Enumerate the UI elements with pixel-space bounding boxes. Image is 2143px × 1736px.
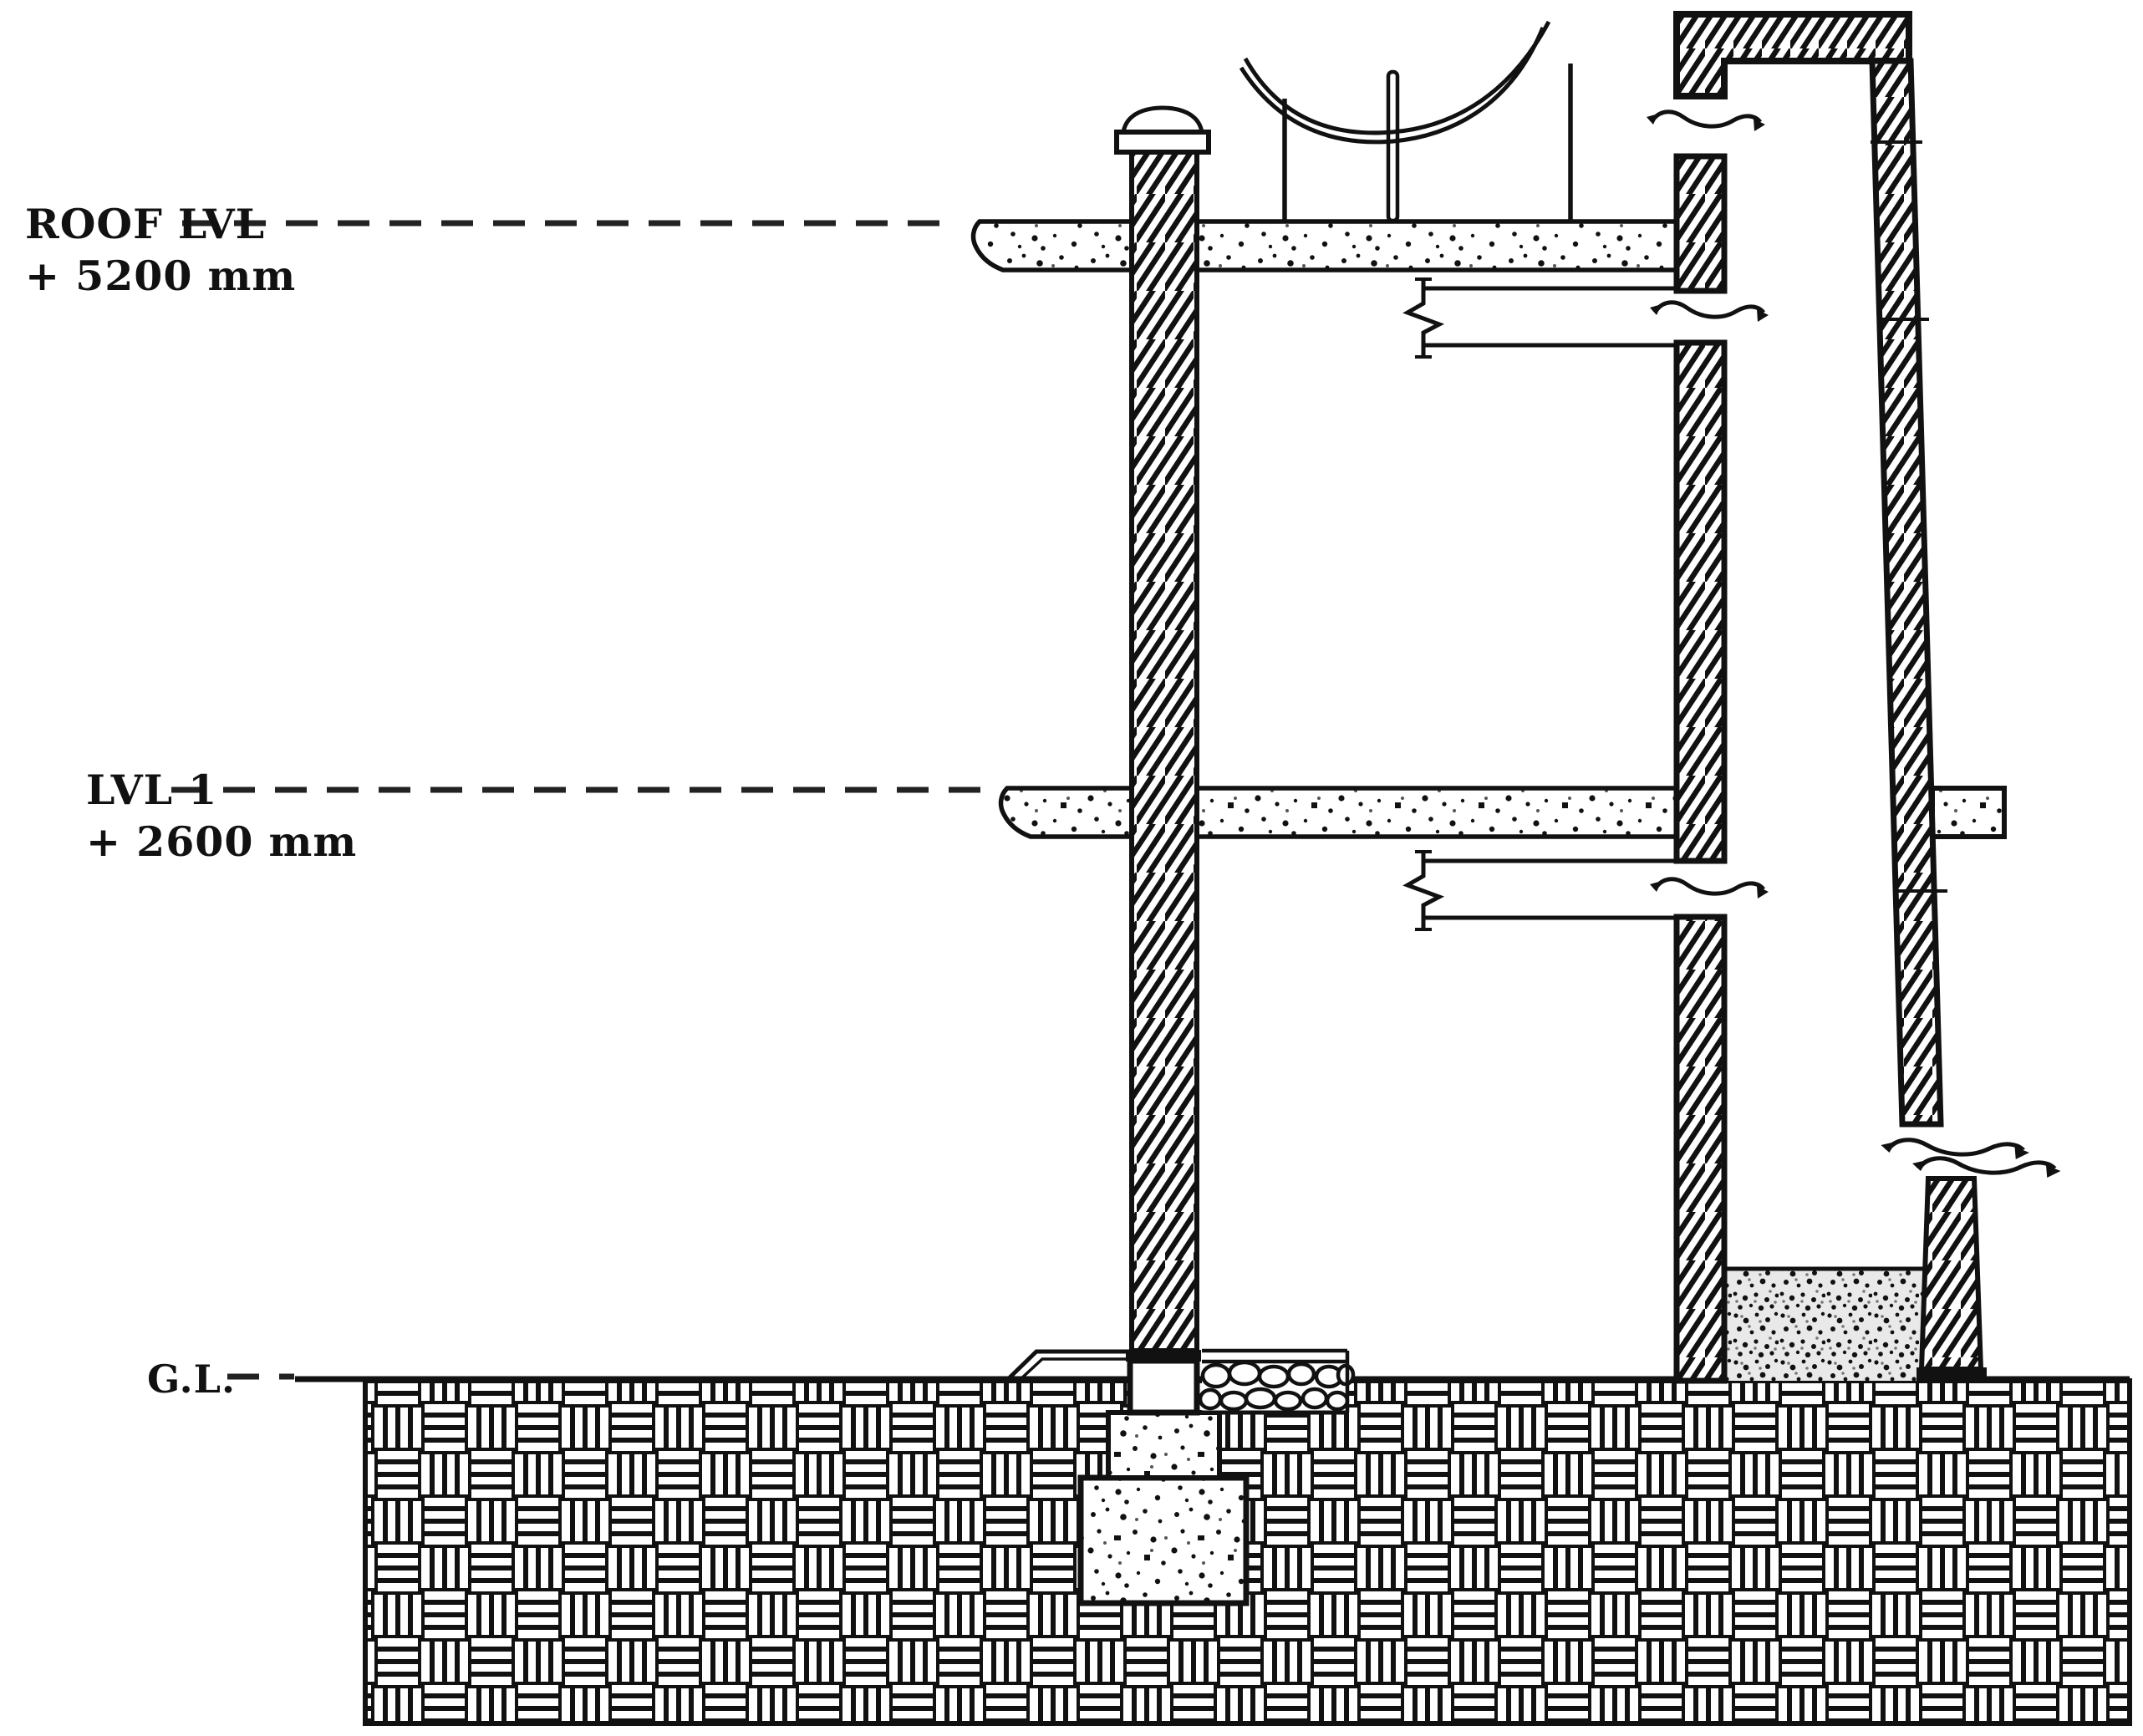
footing-lower-tier: [1081, 1478, 1246, 1603]
inner-wall-segment-middle: [1677, 343, 1724, 861]
level1-label: LVL 1: [86, 766, 217, 814]
level1-elevation: + 2600 mm: [86, 817, 357, 866]
wall-break-level1-icon: [1650, 879, 1769, 899]
level-lines: [171, 223, 995, 1377]
outer-wall-lower-stub: [1922, 1179, 1981, 1369]
plinth-fill: [1713, 1269, 1924, 1381]
roof-canopy: [1241, 22, 1570, 221]
walls: [1677, 14, 1987, 1382]
canopy-center-pole: [1388, 72, 1397, 221]
floor-slabs: [974, 221, 2004, 837]
column: [1117, 108, 1209, 1351]
wall-break-bottom-icon: [1881, 1140, 2061, 1178]
architectural-section-drawing: ROOF LVL + 5200 mm LVL 1 + 2600 mm G.L.: [0, 0, 2143, 1736]
column-shaft: [1132, 150, 1197, 1351]
coarse-fill-block: [1713, 1269, 1924, 1381]
roof-level-elevation: + 5200 mm: [25, 252, 296, 300]
level1-slab: [1001, 788, 1677, 837]
wall-break-roof-icon: [1650, 303, 1769, 322]
column-pedestal: [1130, 1361, 1197, 1413]
section-canvas: ROOF LVL + 5200 mm LVL 1 + 2600 mm G.L.: [0, 0, 2143, 1736]
stub-base-plate: [1916, 1367, 1987, 1382]
inner-wall-segment-lower: [1677, 917, 1724, 1381]
level1-slab-right-stub: [1932, 788, 2004, 837]
stone-soling: [1200, 1351, 1353, 1413]
roof-level-label: ROOF LVL: [25, 200, 265, 248]
ground-level-label: G.L.: [147, 1357, 236, 1402]
inner-wall-segment-upper: [1677, 156, 1724, 291]
outer-wall-slanted: [1872, 61, 1941, 1124]
column-cap-dome: [1123, 108, 1202, 132]
footing-upper-tier: [1108, 1413, 1219, 1478]
level-labels: ROOF LVL + 5200 mm LVL 1 + 2600 mm G.L.: [25, 200, 357, 1402]
column-cap-band: [1117, 132, 1209, 152]
wall-break-top-icon: [1647, 112, 1765, 131]
roof-slab: [974, 221, 1677, 270]
